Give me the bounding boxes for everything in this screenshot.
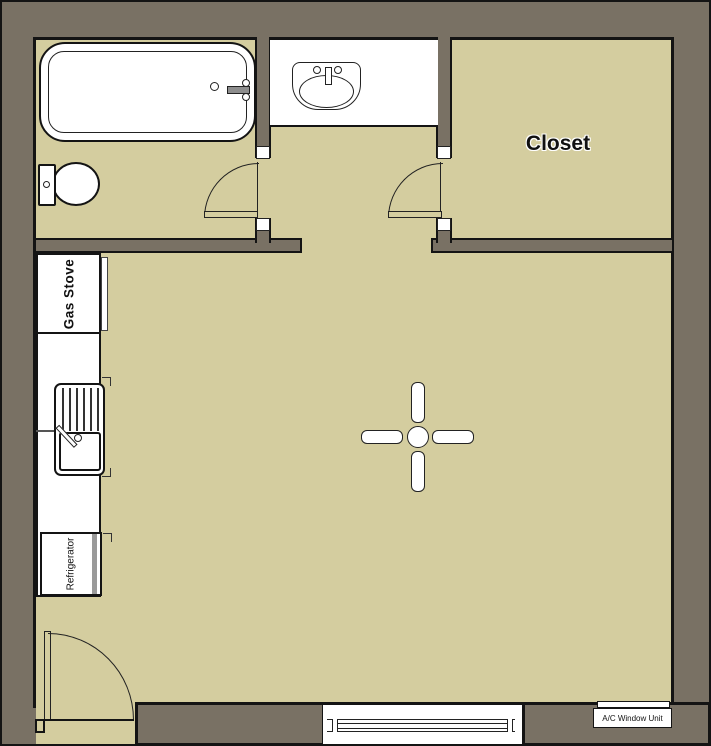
- bathtub-drain: [210, 82, 219, 91]
- sink-spout: [325, 67, 332, 85]
- ceiling-fan-blade: [361, 430, 403, 444]
- wall-south-left-segment: [135, 702, 325, 746]
- ac-window-unit-label-box: A/C Window Unit: [593, 708, 672, 728]
- entry-door-threshold: [38, 719, 134, 721]
- window-glass: [337, 723, 511, 729]
- stove-edge-strip: [101, 257, 108, 331]
- bathtub-knob: [242, 79, 250, 87]
- ceiling-fan-hub: [407, 426, 429, 448]
- gas-stove-label: Gas Stove: [61, 258, 76, 329]
- door-jamb: [256, 146, 270, 159]
- sink-handle-left: [313, 66, 321, 74]
- gas-stove: Gas Stove: [36, 253, 101, 334]
- closet-room-label: Closet: [488, 132, 628, 156]
- bathtub-rim: [48, 51, 247, 133]
- refrigerator-label: Refrigerator: [66, 538, 77, 591]
- entry-door: [44, 631, 51, 720]
- wall-bathroom-east-upper: [255, 37, 271, 158]
- toilet-flush-button: [43, 181, 50, 188]
- kitchen-faucet: [74, 434, 82, 442]
- closet-door: [388, 211, 442, 218]
- drainboard-line: [76, 388, 78, 431]
- drainboard-line: [62, 388, 64, 431]
- entry-door-jamb: [35, 719, 45, 733]
- wall-closet-south: [431, 238, 674, 253]
- window-stop-left: [332, 719, 338, 732]
- ceiling-fan-blade: [432, 430, 474, 444]
- ac-window-unit-label: A/C Window Unit: [602, 714, 662, 723]
- refrigerator-door-edge: [92, 534, 97, 594]
- drainboard-line: [90, 388, 92, 431]
- drainboard-line: [97, 388, 99, 431]
- counter-tick-mark: [102, 468, 111, 477]
- counter-edge-line: [36, 430, 55, 432]
- ac-window-unit: [597, 701, 670, 708]
- toilet-bowl: [52, 162, 100, 206]
- bathtub-knob: [242, 93, 250, 101]
- floor-plan: Closet Gas Stove Refrigerator A/C Window…: [0, 0, 711, 746]
- door-jamb: [437, 146, 451, 159]
- wall-closet-west-upper: [436, 37, 452, 158]
- ceiling-fan-blade: [411, 451, 425, 492]
- counter-tick-mark: [103, 533, 112, 542]
- door-jamb: [437, 218, 451, 231]
- window-stop-right: [507, 719, 513, 732]
- drainboard-line: [83, 388, 85, 431]
- bathroom-door: [204, 211, 258, 218]
- drainboard-line: [69, 388, 71, 431]
- ceiling-fan-blade: [411, 382, 425, 423]
- counter-tick-mark: [102, 377, 111, 386]
- door-jamb: [256, 218, 270, 231]
- sink-handle-right: [334, 66, 342, 74]
